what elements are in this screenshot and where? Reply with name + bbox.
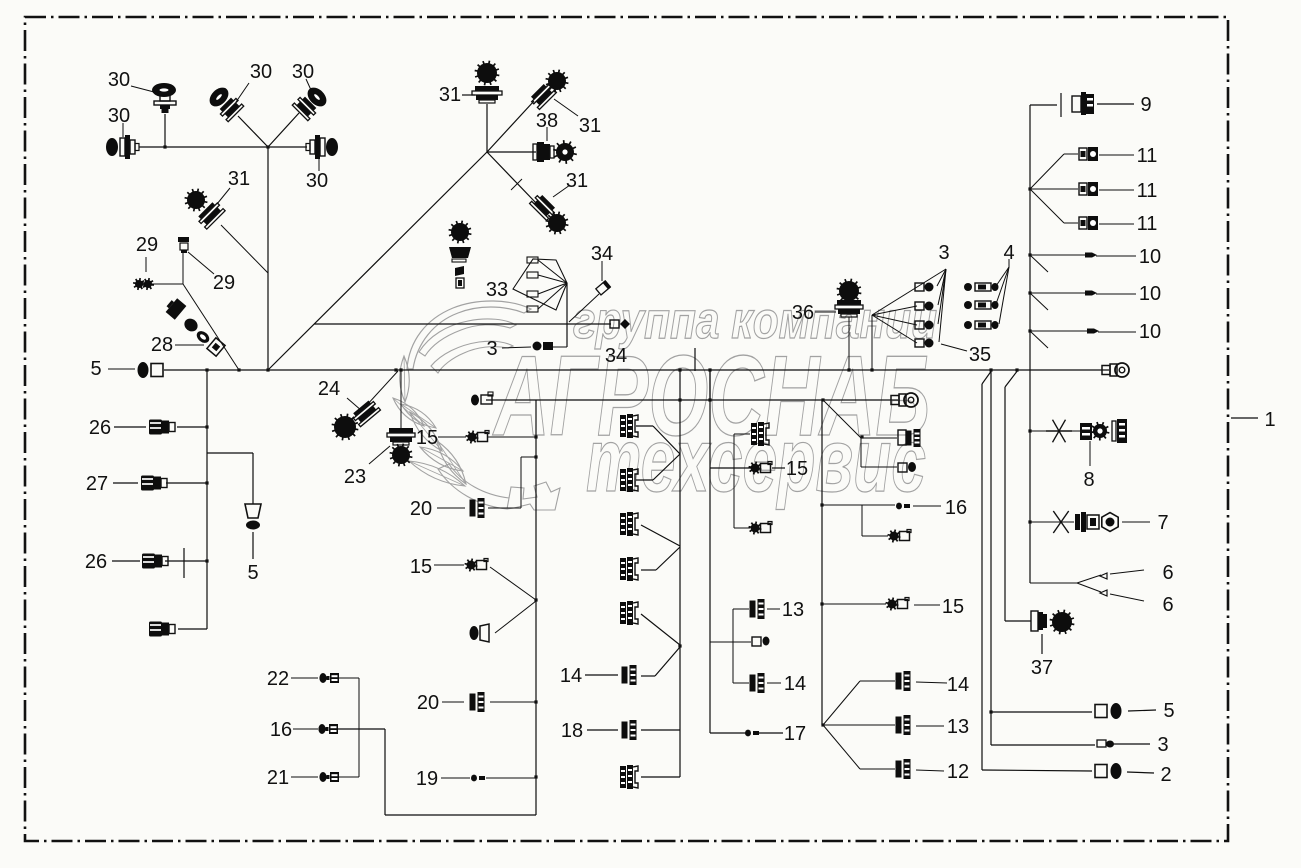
svg-text:20: 20 [417,692,439,714]
svg-text:6: 6 [1162,594,1173,616]
svg-text:16: 16 [270,719,292,741]
svg-text:7: 7 [1157,512,1168,534]
svg-text:36: 36 [792,302,814,324]
svg-text:30: 30 [108,105,130,127]
svg-text:1: 1 [1264,409,1275,431]
svg-text:5: 5 [90,358,101,380]
svg-text:19: 19 [416,768,438,790]
svg-text:34: 34 [591,243,613,265]
svg-text:14: 14 [947,674,969,696]
svg-text:3: 3 [486,338,497,360]
svg-text:33: 33 [486,279,508,301]
svg-text:15: 15 [786,458,808,480]
svg-text:30: 30 [250,61,272,83]
svg-text:13: 13 [947,716,969,738]
svg-text:26: 26 [89,417,111,439]
svg-text:31: 31 [566,170,588,192]
svg-text:10: 10 [1139,321,1161,343]
svg-text:10: 10 [1139,246,1161,268]
svg-text:9: 9 [1140,94,1151,116]
svg-text:29: 29 [136,234,158,256]
svg-text:5: 5 [247,562,258,584]
svg-text:37: 37 [1031,657,1053,679]
svg-text:4: 4 [1003,242,1014,264]
svg-text:29: 29 [213,272,235,294]
svg-text:15: 15 [410,556,432,578]
svg-text:13: 13 [782,599,804,621]
svg-text:11: 11 [1137,213,1158,235]
svg-text:28: 28 [151,334,173,356]
svg-text:11: 11 [1137,145,1158,167]
svg-text:2: 2 [1160,764,1171,786]
svg-text:30: 30 [292,61,314,83]
svg-text:31: 31 [228,168,250,190]
svg-text:6: 6 [1162,562,1173,584]
svg-text:17: 17 [784,723,806,745]
svg-text:30: 30 [306,170,328,192]
svg-text:5: 5 [1163,700,1174,722]
svg-text:14: 14 [784,673,806,695]
svg-text:20: 20 [410,498,432,520]
svg-text:24: 24 [318,378,340,400]
svg-text:26: 26 [85,551,107,573]
svg-text:18: 18 [561,720,583,742]
svg-text:22: 22 [267,668,289,690]
svg-text:23: 23 [344,466,366,488]
svg-text:15: 15 [416,427,438,449]
svg-text:31: 31 [579,115,601,137]
svg-text:3: 3 [938,242,949,264]
svg-text:8: 8 [1083,469,1094,491]
svg-text:12: 12 [947,761,969,783]
svg-text:38: 38 [536,110,558,132]
svg-text:3: 3 [1157,734,1168,756]
svg-text:31: 31 [439,84,461,106]
svg-text:16: 16 [945,497,967,519]
svg-text:15: 15 [942,596,964,618]
svg-text:14: 14 [560,665,582,687]
svg-text:34: 34 [605,345,627,367]
svg-text:30: 30 [108,69,130,91]
svg-text:21: 21 [267,767,289,789]
svg-text:27: 27 [86,473,108,495]
svg-text:11: 11 [1137,180,1158,202]
svg-text:35: 35 [969,344,991,366]
svg-text:10: 10 [1139,283,1161,305]
